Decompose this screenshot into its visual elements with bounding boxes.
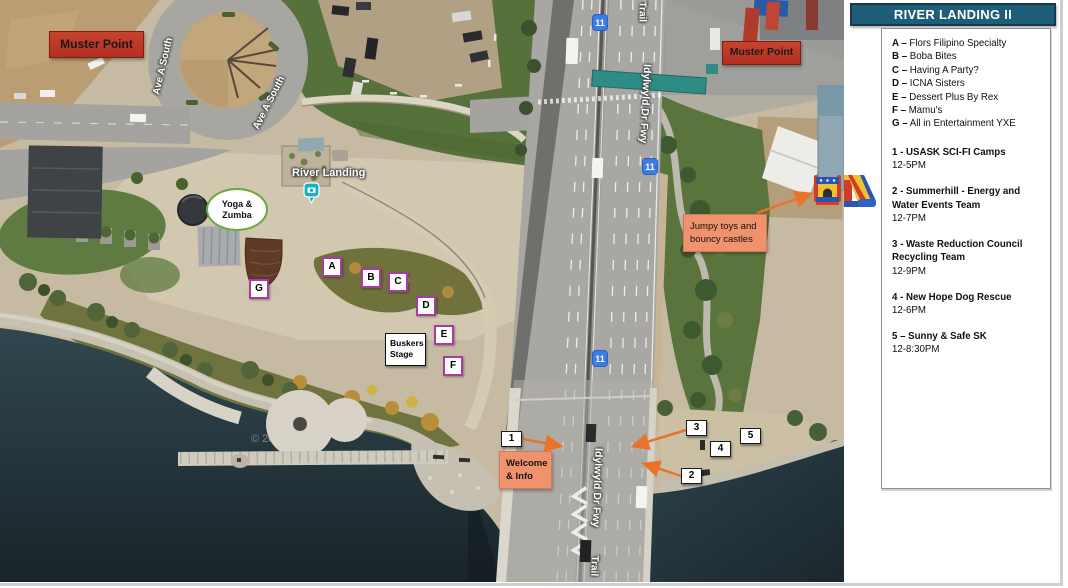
vendor-marker-F: F	[443, 356, 463, 376]
jumpy-line2: bouncy castles	[690, 233, 760, 246]
vendor-name: ICNA Sisters	[910, 78, 965, 89]
welcome-line2: & Info	[506, 470, 545, 483]
vendor-name: All in Entertainment YXE	[910, 118, 1016, 129]
legend-vendor-row: F – Mamu's	[892, 104, 1042, 117]
welcome-info-label: Welcome & Info	[499, 451, 552, 489]
legend-activity: 3 - Waste Reduction Council Recycling Te…	[892, 238, 1042, 278]
yoga-zumba-line2: Zumba	[208, 210, 266, 221]
activity-name: 1 - USASK SCI-FI Camps	[892, 146, 1042, 159]
jumpy-toys-label: Jumpy toys and bouncy castles	[683, 214, 767, 252]
legend-activity: 5 – Sunny & Safe SK 12-8:30PM	[892, 330, 1042, 357]
satellite-terrain	[0, 0, 844, 582]
vendor-name: Flors Filipino Specialty	[909, 38, 1006, 49]
activity-marker-1: 1	[501, 431, 522, 447]
vendor-letter: G –	[892, 118, 908, 129]
activity-time: 12-8:30PM	[892, 343, 1042, 356]
legend-activity: 4 - New Hope Dog Rescue 12-6PM	[892, 291, 1042, 318]
vendor-marker-E: E	[434, 325, 454, 345]
activity-name: 4 - New Hope Dog Rescue	[892, 291, 1042, 304]
legend-vendor-row: C – Having A Party?	[892, 64, 1042, 77]
activity-marker-5: 5	[740, 428, 761, 444]
legend-vendor-row: E – Dessert Plus By Rex	[892, 91, 1042, 104]
buskers-line1: Buskers	[390, 338, 425, 349]
legend-vendor-row: D – ICNA Sisters	[892, 77, 1042, 90]
route-shield-icon: 11	[592, 350, 608, 367]
yoga-zumba-line1: Yoga &	[208, 199, 266, 210]
activity-name: 3 - Waste Reduction Council Recycling Te…	[892, 238, 1042, 265]
vendor-name: Mamu's	[909, 105, 943, 116]
activity-time: 12-9PM	[892, 265, 1042, 278]
road-label-trail-bottom: Trail	[588, 555, 600, 581]
legend-vendor-row: A – Flors Filipino Specialty	[892, 37, 1042, 50]
river-landing-place-label: River Landing	[292, 167, 365, 179]
vendor-letter: D –	[892, 78, 907, 89]
vendor-letter: C –	[892, 65, 907, 76]
jumpy-line1: Jumpy toys and	[690, 220, 760, 233]
activity-time: 12-5PM	[892, 159, 1042, 172]
activity-marker-4: 4	[710, 441, 731, 457]
vendor-marker-A: A	[322, 257, 342, 277]
buskers-line2: Stage	[390, 349, 425, 360]
legend-vendor-row: G – All in Entertainment YXE	[892, 117, 1042, 130]
legend-activity: 2 - Summerhill - Energy and Water Events…	[892, 185, 1042, 225]
page-edge-bottom	[0, 583, 1063, 586]
activity-marker-2: 2	[681, 468, 702, 484]
route-shield-icon: 11	[642, 158, 658, 175]
legend-title: RIVER LANDING II	[850, 3, 1056, 26]
buskers-stage-label: Buskers Stage	[385, 333, 426, 366]
vendor-marker-G: G	[249, 279, 269, 299]
vendor-marker-D: D	[416, 296, 436, 316]
yoga-zumba-label: Yoga & Zumba	[206, 188, 268, 231]
page: Trail Idylwyld Dr Fwy Idylwyld Dr Fwy Tr…	[0, 0, 1068, 588]
vendor-marker-B: B	[361, 268, 381, 288]
vendor-marker-C: C	[388, 272, 408, 292]
muster-point-label-west: Muster Point	[49, 31, 144, 58]
activity-name: 5 – Sunny & Safe SK	[892, 330, 1042, 343]
legend-panel: A – Flors Filipino Specialty B – Boba Bi…	[881, 28, 1051, 489]
vendor-letter: F –	[892, 105, 906, 116]
activity-marker-3: 3	[686, 420, 707, 436]
vendor-letter: E –	[892, 92, 907, 103]
vendor-letter: B –	[892, 51, 907, 62]
vendor-name: Having A Party?	[910, 65, 979, 76]
activity-time: 12-7PM	[892, 212, 1042, 225]
satellite-map: Trail Idylwyld Dr Fwy Idylwyld Dr Fwy Tr…	[0, 0, 844, 582]
vendor-letter: A –	[892, 38, 907, 49]
bouncy-castle-icon	[814, 169, 876, 209]
photo-pin-icon	[303, 182, 320, 209]
vendor-name: Boba Bites	[910, 51, 957, 62]
route-shield-icon: 11	[592, 14, 608, 31]
page-edge-right	[1060, 0, 1063, 586]
activity-name: 2 - Summerhill - Energy and Water Events…	[892, 185, 1042, 212]
welcome-line1: Welcome	[506, 457, 545, 470]
activity-time: 12-6PM	[892, 304, 1042, 317]
legend-vendor-row: B – Boba Bites	[892, 50, 1042, 63]
vendor-name: Dessert Plus By Rex	[909, 92, 998, 103]
legend-activity: 1 - USASK SCI-FI Camps 12-5PM	[892, 146, 1042, 173]
map-copyright: © 2022 Google	[251, 433, 325, 445]
muster-point-label-east: Muster Point	[722, 41, 801, 65]
road-label-trail-top: Trail	[637, 2, 648, 28]
